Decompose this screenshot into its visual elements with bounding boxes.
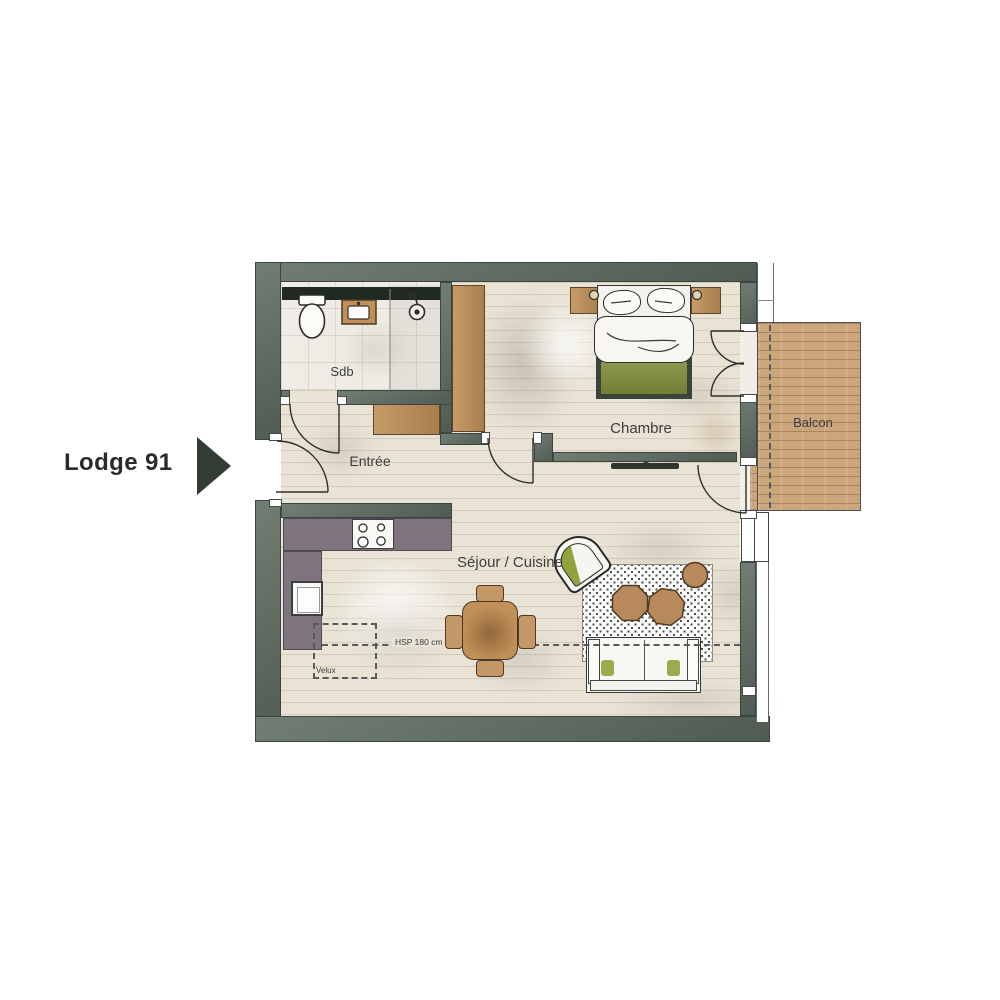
sink-basin bbox=[297, 587, 320, 613]
living-window bbox=[741, 512, 769, 562]
cooktop bbox=[352, 519, 394, 549]
door-jamb bbox=[280, 396, 290, 405]
living-window-mullion bbox=[754, 513, 755, 561]
velux-label: Velux bbox=[316, 666, 336, 675]
window-jamb bbox=[742, 686, 756, 696]
door-jamb bbox=[269, 499, 282, 507]
wall-left-lower bbox=[255, 500, 281, 742]
sofa-backrest bbox=[590, 680, 697, 691]
window-mullion bbox=[757, 300, 774, 301]
door-jamb bbox=[269, 433, 282, 441]
glazing-right-living bbox=[756, 562, 769, 722]
door-jamb bbox=[533, 432, 542, 444]
sofa-cushion-green bbox=[667, 660, 680, 676]
bed-blanket bbox=[601, 362, 687, 394]
bathroom-label: Sdb bbox=[322, 364, 362, 379]
sofa-cushion-divider bbox=[644, 640, 645, 681]
ceiling-height-label: HSP 180 cm bbox=[392, 637, 446, 647]
floor-shading bbox=[300, 420, 380, 480]
dining-chair-north bbox=[476, 585, 504, 602]
entry-closet bbox=[373, 403, 440, 435]
french-door-threshold bbox=[740, 332, 757, 395]
door-jamb bbox=[337, 396, 347, 405]
wall-left-upper bbox=[255, 262, 281, 440]
door-jamb bbox=[740, 457, 757, 466]
page-title: Lodge 91 bbox=[64, 449, 173, 477]
door-jamb bbox=[740, 394, 757, 403]
bathroom-duct bbox=[282, 287, 440, 300]
dining-table bbox=[462, 601, 518, 660]
wardrobe bbox=[452, 285, 485, 432]
wall-bedroom-south-b bbox=[553, 452, 737, 462]
window-above-balcony bbox=[757, 263, 774, 322]
wall-top bbox=[255, 262, 757, 282]
wall-bottom bbox=[255, 716, 770, 742]
wall-bathroom-east bbox=[440, 282, 452, 433]
bed-duvet bbox=[594, 316, 694, 363]
kitchen-sink bbox=[291, 581, 323, 616]
wall-entry-south bbox=[281, 503, 452, 518]
floor-plan-canvas: Velux HSP 180 cm Balcon Sdb Entrée Chamb… bbox=[0, 0, 1000, 1000]
dining-chair-east bbox=[518, 615, 536, 649]
floor-shading bbox=[688, 408, 743, 458]
wall-right-bedroom-lower bbox=[740, 396, 757, 463]
living-kitchen-label: Séjour / Cuisine bbox=[440, 554, 580, 571]
pillow-right bbox=[646, 287, 685, 314]
bedroom-label: Chambre bbox=[596, 420, 686, 437]
nightstand-right bbox=[691, 287, 721, 314]
sofa-cushion-green bbox=[601, 660, 614, 676]
pointer-arrow-icon bbox=[197, 437, 231, 495]
dining-chair-south bbox=[476, 660, 504, 677]
dining-chair-west bbox=[445, 615, 463, 649]
door-jamb bbox=[481, 432, 490, 444]
deck-edge bbox=[750, 464, 757, 513]
nightstand-left bbox=[570, 287, 600, 314]
door-jamb bbox=[740, 323, 757, 332]
tv bbox=[611, 463, 679, 469]
door-jamb bbox=[740, 510, 757, 519]
balcony-label: Balcon bbox=[758, 415, 860, 430]
wall-bathroom-south-b bbox=[337, 390, 452, 405]
entry-label: Entrée bbox=[335, 453, 405, 469]
balcony-deck: Balcon bbox=[757, 322, 861, 511]
